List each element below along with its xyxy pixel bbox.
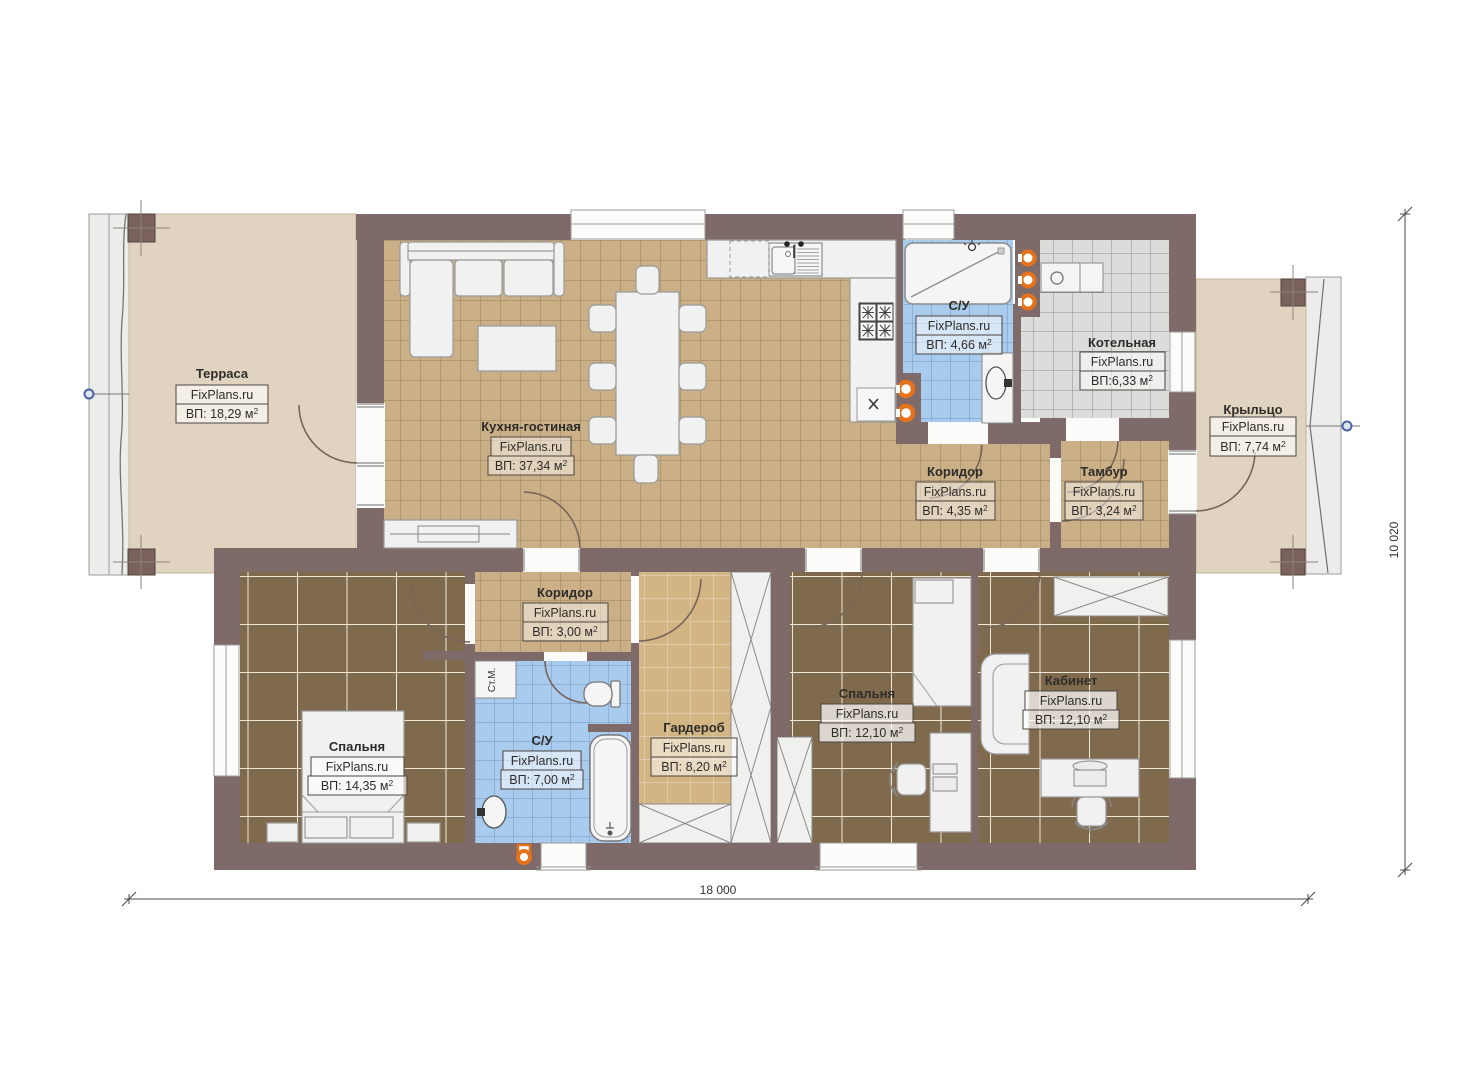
svg-text:ВП: 14,35 м2: ВП: 14,35 м2 <box>321 778 394 793</box>
svg-text:С/У: С/У <box>948 298 970 313</box>
svg-text:Коридор: Коридор <box>537 585 593 600</box>
svg-text:Котельная: Котельная <box>1088 335 1156 350</box>
svg-text:FixPlans.ru: FixPlans.ru <box>511 754 574 768</box>
svg-text:FixPlans.ru: FixPlans.ru <box>326 760 389 774</box>
svg-text:ВП: 18,29 м2: ВП: 18,29 м2 <box>186 406 259 421</box>
svg-text:Коридор: Коридор <box>927 464 983 479</box>
svg-text:10 020: 10 020 <box>1387 521 1401 558</box>
svg-text:FixPlans.ru: FixPlans.ru <box>836 707 899 721</box>
svg-text:Тамбур: Тамбур <box>1080 464 1127 479</box>
svg-text:Ст.М.: Ст.М. <box>487 668 498 693</box>
svg-text:ВП: 4,66 м2: ВП: 4,66 м2 <box>926 337 992 352</box>
svg-text:FixPlans.ru: FixPlans.ru <box>500 440 563 454</box>
svg-text:ВП: 7,00 м2: ВП: 7,00 м2 <box>509 772 575 787</box>
svg-text:С/У: С/У <box>531 733 553 748</box>
svg-text:ВП: 3,00 м2: ВП: 3,00 м2 <box>532 624 598 639</box>
svg-text:FixPlans.ru: FixPlans.ru <box>928 319 991 333</box>
svg-text:Кухня-гостиная: Кухня-гостиная <box>481 419 581 434</box>
svg-text:ВП: 12,10 м2: ВП: 12,10 м2 <box>831 725 904 740</box>
svg-text:ВП: 4,35 м2: ВП: 4,35 м2 <box>922 503 988 518</box>
svg-text:FixPlans.ru: FixPlans.ru <box>1222 420 1285 434</box>
svg-text:Терраса: Терраса <box>196 366 249 381</box>
svg-text:ВП: 37,34 м2: ВП: 37,34 м2 <box>495 458 568 473</box>
svg-text:Гардероб: Гардероб <box>663 720 724 735</box>
svg-text:FixPlans.ru: FixPlans.ru <box>1040 694 1103 708</box>
svg-text:ВП: 3,24 м2: ВП: 3,24 м2 <box>1071 503 1137 518</box>
svg-text:18 000: 18 000 <box>700 883 737 897</box>
svg-text:FixPlans.ru: FixPlans.ru <box>924 485 987 499</box>
svg-text:ВП:6,33 м2: ВП:6,33 м2 <box>1091 373 1153 388</box>
svg-text:FixPlans.ru: FixPlans.ru <box>663 741 726 755</box>
svg-text:FixPlans.ru: FixPlans.ru <box>191 388 254 402</box>
svg-text:Спальня: Спальня <box>839 686 895 701</box>
svg-text:FixPlans.ru: FixPlans.ru <box>534 606 597 620</box>
svg-text:FixPlans.ru: FixPlans.ru <box>1073 485 1136 499</box>
svg-text:ВП: 8,20 м2: ВП: 8,20 м2 <box>661 759 727 774</box>
svg-text:Крыльцо: Крыльцо <box>1223 402 1282 417</box>
svg-text:Спальня: Спальня <box>329 739 385 754</box>
svg-text:ВП: 12,10 м2: ВП: 12,10 м2 <box>1035 712 1108 727</box>
svg-text:FixPlans.ru: FixPlans.ru <box>1091 355 1154 369</box>
svg-text:Кабинет: Кабинет <box>1045 673 1098 688</box>
svg-text:ВП: 7,74 м2: ВП: 7,74 м2 <box>1220 439 1286 454</box>
